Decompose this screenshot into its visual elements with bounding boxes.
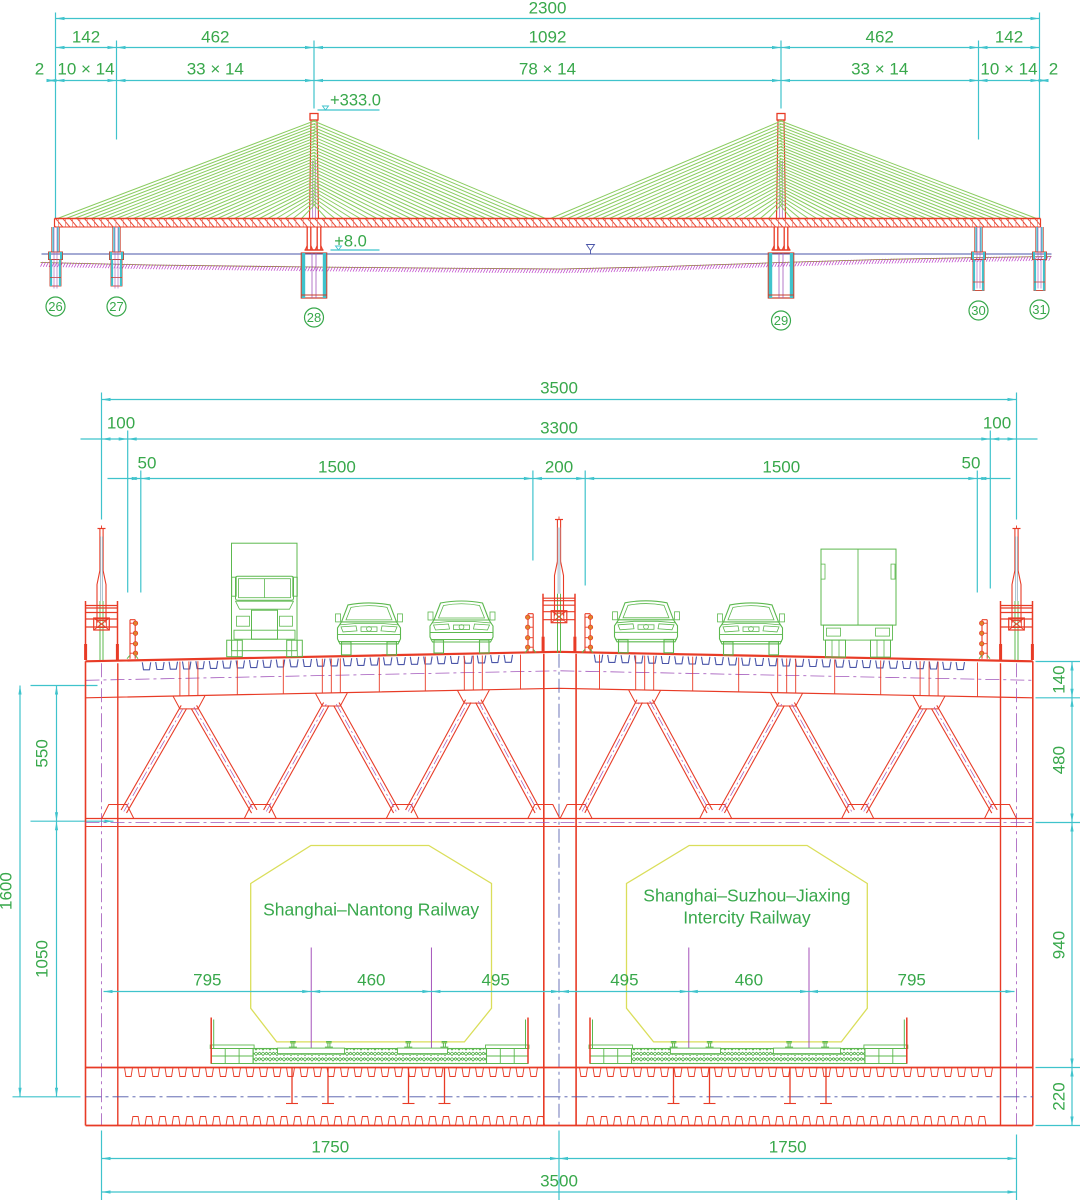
svg-text:Shanghai–Nantong Railway: Shanghai–Nantong Railway <box>263 900 479 920</box>
svg-text:Shanghai–Suzhou–Jiaxing: Shanghai–Suzhou–Jiaxing <box>643 886 850 906</box>
svg-text:10 × 14: 10 × 14 <box>57 60 114 79</box>
svg-text:3300: 3300 <box>540 419 578 438</box>
svg-text:142: 142 <box>995 28 1023 47</box>
svg-text:30: 30 <box>971 303 985 318</box>
svg-text:Intercity Railway: Intercity Railway <box>683 908 811 928</box>
svg-text:480: 480 <box>1050 746 1069 774</box>
svg-text:2: 2 <box>1049 60 1058 79</box>
svg-text:1600: 1600 <box>0 872 16 910</box>
svg-text:33 × 14: 33 × 14 <box>187 60 244 79</box>
svg-text:28: 28 <box>307 310 321 325</box>
svg-text:100: 100 <box>107 414 135 433</box>
svg-text:460: 460 <box>357 971 385 990</box>
svg-text:140: 140 <box>1050 665 1069 693</box>
svg-text:200: 200 <box>545 458 573 477</box>
svg-text:550: 550 <box>33 739 52 767</box>
svg-text:1500: 1500 <box>762 458 800 477</box>
svg-text:3500: 3500 <box>540 379 578 398</box>
svg-text:27: 27 <box>109 299 123 314</box>
svg-text:31: 31 <box>1032 302 1046 317</box>
svg-text:220: 220 <box>1050 1082 1069 1110</box>
svg-text:26: 26 <box>48 299 62 314</box>
svg-text:495: 495 <box>482 971 510 990</box>
svg-text:50: 50 <box>962 454 981 473</box>
svg-text:460: 460 <box>735 971 763 990</box>
svg-text:1500: 1500 <box>318 458 356 477</box>
svg-text:142: 142 <box>72 28 100 47</box>
svg-text:462: 462 <box>866 28 894 47</box>
svg-text:1050: 1050 <box>33 940 52 978</box>
svg-text:795: 795 <box>898 971 926 990</box>
svg-text:1750: 1750 <box>769 1138 807 1157</box>
svg-text:2300: 2300 <box>529 0 567 18</box>
svg-text:795: 795 <box>193 971 221 990</box>
svg-text:1750: 1750 <box>311 1138 349 1157</box>
svg-text:940: 940 <box>1050 931 1069 959</box>
svg-text:10 × 14: 10 × 14 <box>980 60 1037 79</box>
svg-text:+333.0: +333.0 <box>330 92 381 110</box>
svg-text:1092: 1092 <box>529 28 567 47</box>
svg-text:495: 495 <box>610 971 638 990</box>
svg-text:+8.0: +8.0 <box>334 233 367 251</box>
svg-text:50: 50 <box>138 454 157 473</box>
svg-text:29: 29 <box>774 313 788 328</box>
svg-text:2: 2 <box>35 60 44 79</box>
svg-text:78 × 14: 78 × 14 <box>519 60 576 79</box>
svg-text:33 × 14: 33 × 14 <box>851 60 908 79</box>
svg-text:462: 462 <box>201 28 229 47</box>
svg-text:100: 100 <box>983 414 1011 433</box>
